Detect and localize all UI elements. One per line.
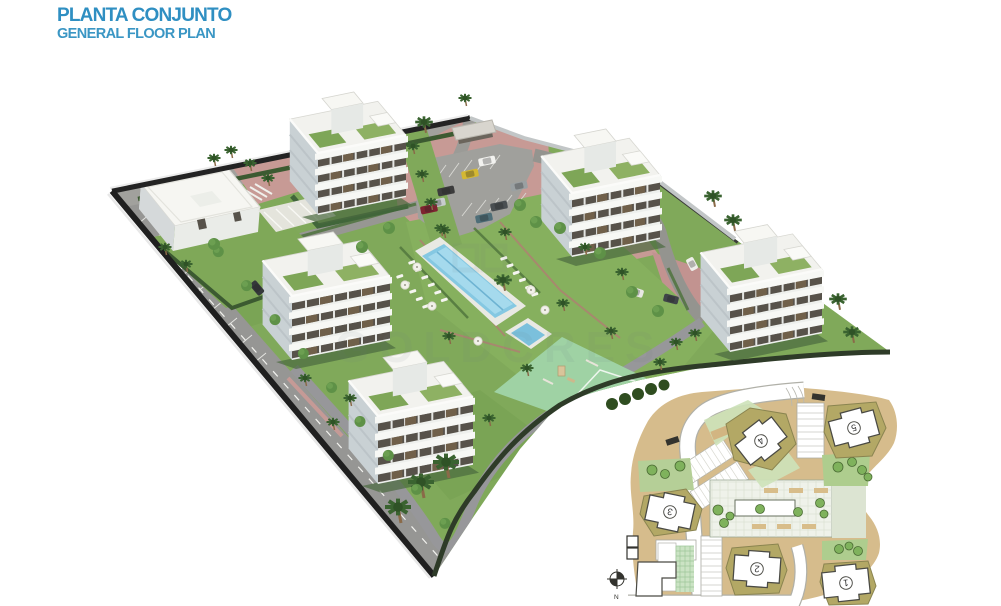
svg-text:1: 1 — [843, 576, 849, 587]
svg-text:N: N — [614, 594, 619, 601]
svg-text:GOLDCRES: GOLDCRES — [335, 323, 664, 372]
svg-text:2: 2 — [754, 562, 760, 573]
